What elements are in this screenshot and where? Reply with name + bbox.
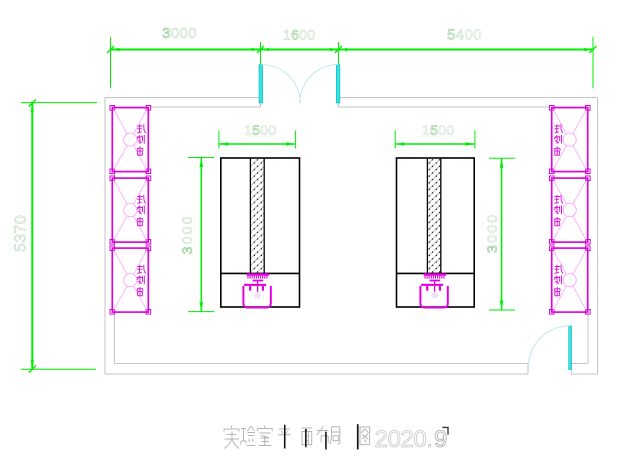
- svg-text:1600: 1600: [283, 27, 315, 43]
- svg-text:3000: 3000: [179, 214, 195, 254]
- svg-text:1500: 1500: [422, 122, 454, 138]
- svg-text:5370: 5370: [13, 215, 30, 252]
- svg-text:2020.: 2020.: [375, 426, 433, 453]
- svg-text:3000: 3000: [484, 213, 500, 253]
- svg-text:3000: 3000: [162, 25, 197, 42]
- svg-text:9: 9: [434, 426, 447, 453]
- svg-text:5400: 5400: [447, 27, 482, 44]
- svg-text:1500: 1500: [244, 122, 276, 138]
